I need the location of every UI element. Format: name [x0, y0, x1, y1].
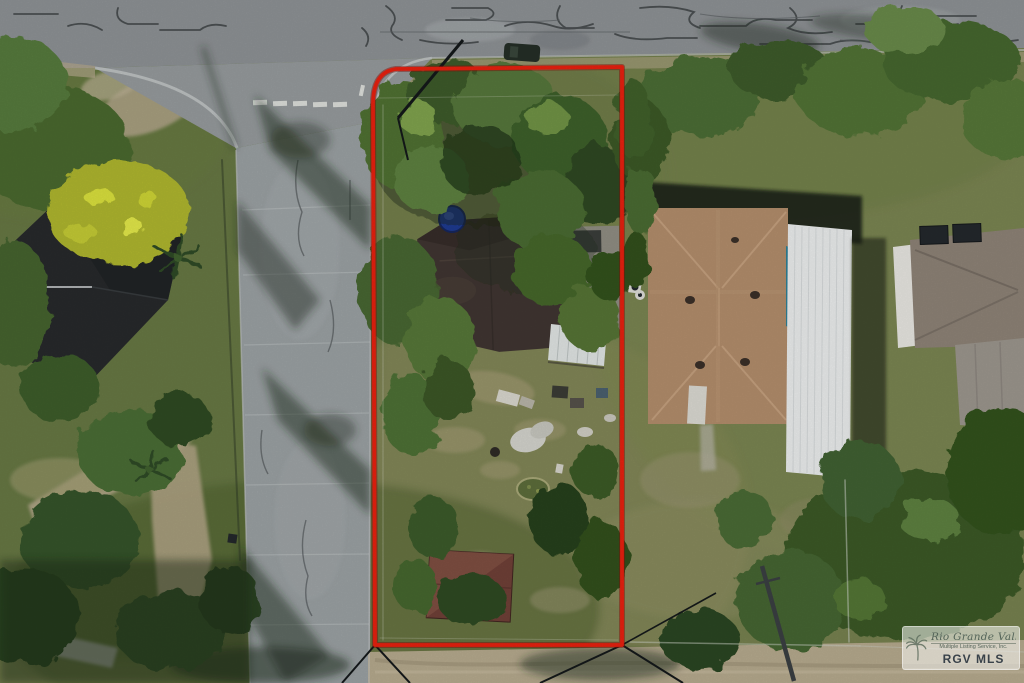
aerial-photo: Rio Grande Valley Multiple Listing Servi…	[0, 0, 1024, 683]
watermark-abbr: RGV MLS	[931, 653, 1016, 665]
aerial-scene	[0, 0, 1024, 683]
watermark-subtitle: Multiple Listing Service, Inc.	[931, 643, 1016, 652]
watermark-brand: Rio Grande Valley	[931, 632, 1016, 643]
palm-tree-icon	[905, 630, 929, 666]
mls-watermark: Rio Grande Valley Multiple Listing Servi…	[902, 626, 1020, 670]
film-grain	[0, 0, 1024, 683]
